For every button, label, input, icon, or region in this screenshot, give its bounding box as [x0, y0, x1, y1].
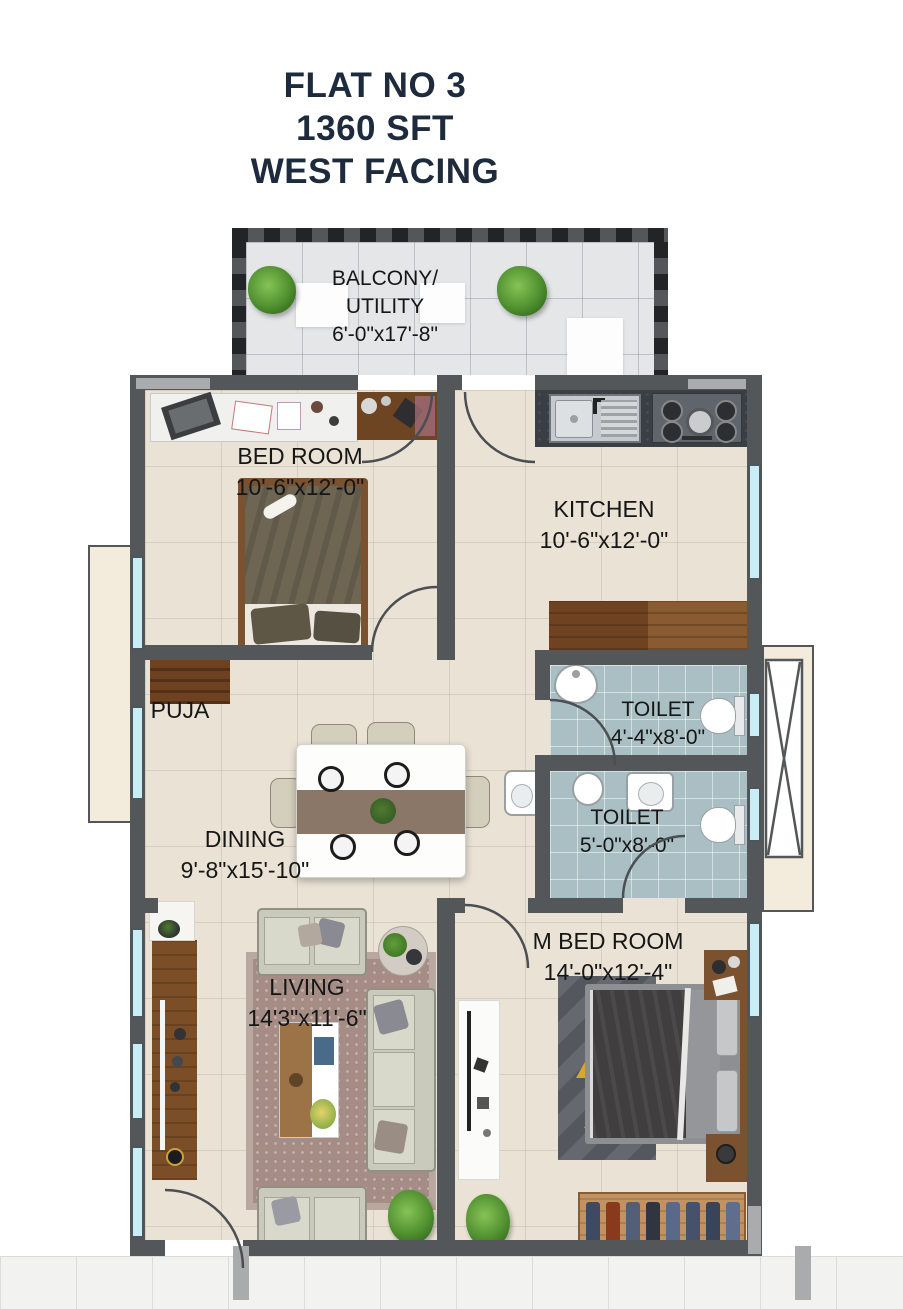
- kitchen-balcony-door-arc: [465, 392, 535, 462]
- doors-overlay: [0, 0, 903, 1309]
- toilet-top-door-arc: [550, 700, 615, 765]
- toilet-bottom-door-arc: [623, 836, 685, 898]
- entrance-door-arc: [165, 1190, 243, 1268]
- bedroom-balcony-door-arc: [362, 392, 432, 462]
- bedroom-door-arc: [372, 587, 437, 652]
- floor-plan: FLAT NO 3 1360 SFT WEST FACING: [0, 0, 903, 1309]
- master-bedroom-door-arc: [465, 905, 528, 968]
